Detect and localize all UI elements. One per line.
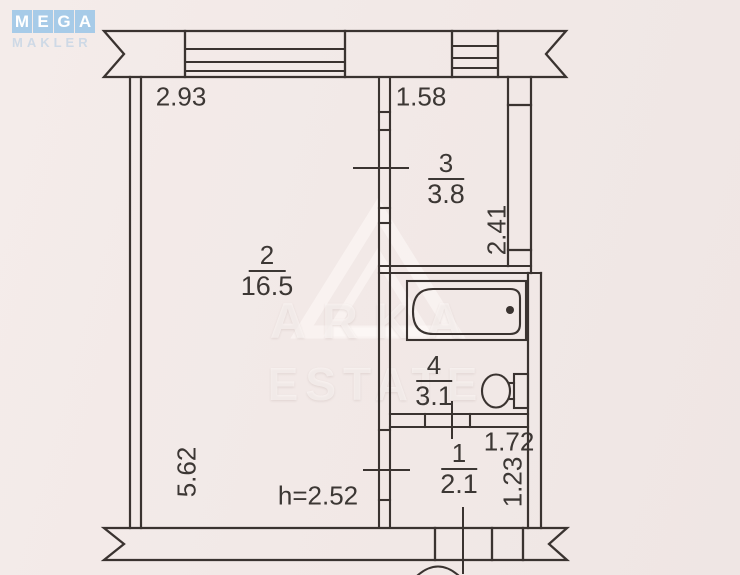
mega-logo: M E G A MAKLER xyxy=(12,10,95,50)
interior-wall-vertical xyxy=(379,77,390,528)
outer-wall-bottom xyxy=(104,528,567,560)
dimension-room1-depth: 1.23 xyxy=(498,457,529,508)
window-top-large-icon xyxy=(185,49,345,71)
room-2-label: 2 16.5 xyxy=(241,242,294,300)
room-4-number: 4 xyxy=(416,352,452,382)
outer-wall-right-lower xyxy=(528,273,541,528)
room-1-area: 2.1 xyxy=(440,471,478,498)
floorplan-photo: ARKA ESTATE xyxy=(0,0,740,575)
dimension-top-left: 2.93 xyxy=(156,82,207,113)
door-swing-arc xyxy=(418,567,458,575)
room-1-label: 1 2.1 xyxy=(440,440,478,498)
room-3-number: 3 xyxy=(428,150,464,180)
mega-logo-tiles: M E G A xyxy=(12,10,95,33)
room-3-label: 3 3.8 xyxy=(427,150,465,208)
room-3-area: 3.8 xyxy=(427,181,465,208)
bathtub-icon xyxy=(407,281,526,340)
room-2-number: 2 xyxy=(249,242,285,272)
room-4-label: 4 3.1 xyxy=(415,352,453,410)
room-4-area: 3.1 xyxy=(415,383,453,410)
dimension-room3-depth: 2.41 xyxy=(482,205,513,256)
dimension-top-right: 1.58 xyxy=(396,82,447,113)
wall-room3-bottom xyxy=(379,266,541,273)
logo-subtitle: MAKLER xyxy=(12,35,95,50)
floorplan-drawing xyxy=(0,0,740,575)
dimension-room1-width: 1.72 xyxy=(484,427,535,458)
break-symbol-top-left xyxy=(104,31,185,77)
logo-letter-m: M xyxy=(12,10,32,33)
toilet-icon xyxy=(482,374,528,408)
wall-room4-bottom xyxy=(390,414,528,427)
room-1-number: 1 xyxy=(441,440,477,470)
dimension-ceiling-height: h=2.52 xyxy=(278,481,358,512)
logo-letter-g: G xyxy=(54,10,74,33)
logo-letter-a: A xyxy=(75,10,95,33)
dimension-left-height: 5.62 xyxy=(172,447,203,498)
outer-wall-left xyxy=(130,77,141,528)
room-2-area: 16.5 xyxy=(241,273,294,300)
window-top-small-icon xyxy=(452,46,498,68)
break-symbol-top-right xyxy=(498,31,566,77)
logo-letter-e: E xyxy=(33,10,53,33)
